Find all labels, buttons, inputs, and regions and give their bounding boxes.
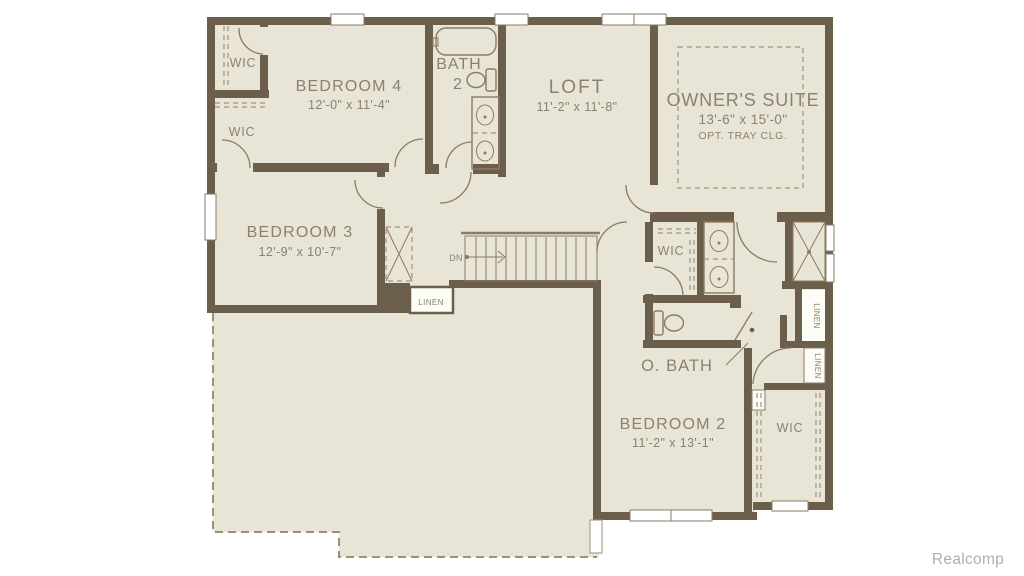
floor-plan-svg: WIC WIC BEDROOM 4 12'-0" x 11'-4" BATH 2… bbox=[0, 0, 1024, 576]
owners-suite-dims: 13'-6" x 15'-0" bbox=[698, 112, 787, 127]
exterior-stub bbox=[590, 520, 602, 553]
bedroom3-label: BEDROOM 3 bbox=[247, 224, 354, 241]
wic-bedroom2-label: WIC bbox=[777, 421, 804, 435]
shower-drain bbox=[807, 250, 811, 254]
bedroom2-dims: 11'-2" x 13'-1" bbox=[632, 436, 714, 450]
bath2-label-line1: BATH bbox=[436, 56, 481, 73]
realcomp-watermark: Realcomp bbox=[932, 551, 1004, 568]
bedroom4-dims: 12'-0" x 11'-4" bbox=[308, 98, 390, 112]
bath2-label-line2: 2 bbox=[453, 76, 463, 93]
linen-upper-label: LINEN bbox=[812, 303, 821, 329]
owners-suite-note: OPT. TRAY CLG. bbox=[699, 130, 788, 142]
window bbox=[205, 194, 216, 240]
linen-hall-label: LINEN bbox=[418, 298, 444, 307]
floor-plan-page: WIC WIC BEDROOM 4 12'-0" x 11'-4" BATH 2… bbox=[0, 0, 1024, 576]
shower-glass bbox=[826, 254, 834, 282]
loft-dims: 11'-2" x 11'-8" bbox=[536, 100, 617, 114]
wic-owner-label: WIC bbox=[658, 244, 685, 258]
solid-wall-block bbox=[382, 283, 410, 313]
window bbox=[495, 14, 528, 25]
wic-bedroom4-label: WIC bbox=[230, 56, 257, 70]
owners-bath-label: O. BATH bbox=[641, 357, 713, 375]
bedroom3-dims: 12'-9" x 10'-7" bbox=[259, 245, 342, 259]
window bbox=[772, 501, 808, 511]
owners-suite-label: OWNER'S SUITE bbox=[667, 90, 820, 110]
door-knob-dot bbox=[750, 328, 755, 333]
linen-lower-label: LINEN bbox=[813, 353, 822, 379]
window bbox=[331, 14, 364, 25]
wic-bedroom3-label: WIC bbox=[229, 125, 256, 139]
door-leaf bbox=[752, 390, 765, 410]
shower-glass bbox=[826, 225, 834, 251]
bedroom4-label: BEDROOM 4 bbox=[296, 78, 403, 95]
loft-label: LOFT bbox=[549, 77, 606, 98]
stairs-dn-label: DN bbox=[449, 253, 463, 263]
bedroom2-label: BEDROOM 2 bbox=[620, 416, 727, 433]
